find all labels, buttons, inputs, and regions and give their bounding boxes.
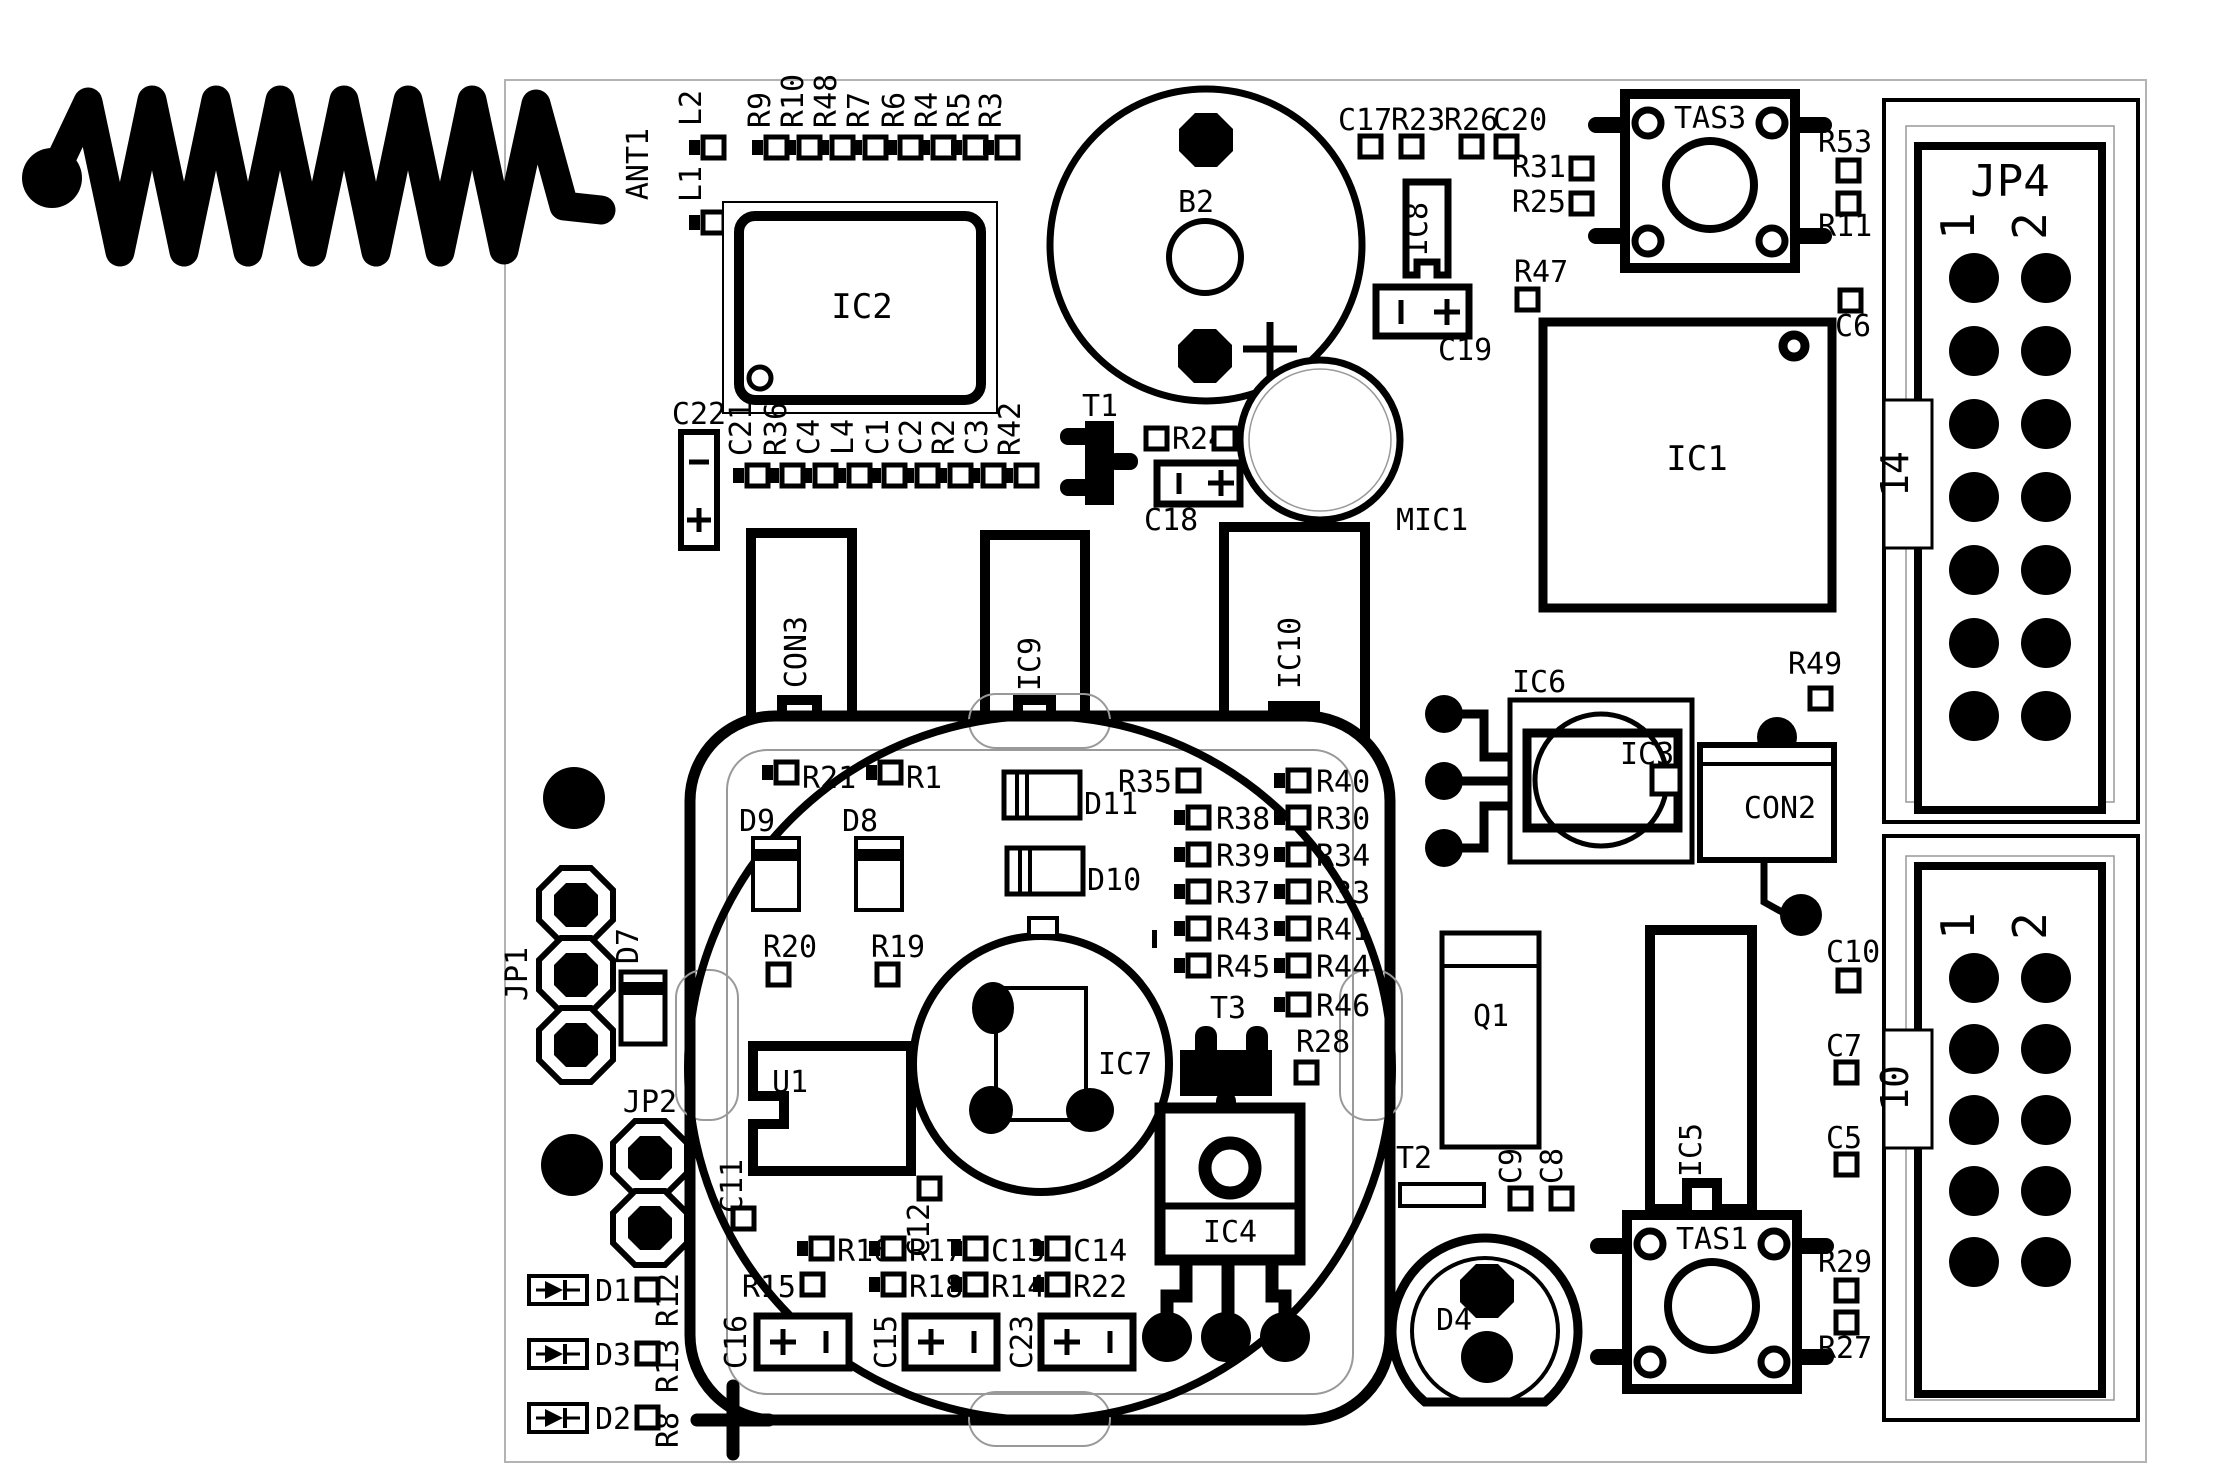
label-d2: D2	[595, 1402, 631, 1437]
pin	[1949, 545, 1999, 595]
jp2-pad	[613, 1121, 687, 1195]
pin	[2021, 618, 2071, 668]
label-r9: R9	[743, 92, 778, 128]
pin	[1949, 253, 1999, 303]
label-r13: R13	[651, 1339, 686, 1393]
label-r30: R30	[1316, 802, 1370, 837]
ic1-pin1-dot	[1783, 335, 1805, 357]
component-d8	[856, 838, 902, 910]
label-r7: R7	[842, 92, 877, 128]
label-r27: R27	[1818, 1331, 1872, 1366]
pin	[1949, 1095, 1999, 1145]
label-tas3: TAS3	[1674, 101, 1746, 136]
solder-pad	[733, 465, 768, 486]
label-c11: C11	[715, 1159, 750, 1213]
label-r12: R12	[651, 1273, 686, 1327]
label-d8: D8	[842, 804, 878, 839]
pin	[1142, 1312, 1192, 1362]
pin	[2021, 399, 2071, 449]
solder-pad	[1810, 688, 1831, 709]
component-d1	[529, 1276, 587, 1304]
label-c10: C10	[1826, 935, 1880, 970]
solder-pad	[1174, 918, 1209, 939]
solder-pad	[936, 465, 971, 486]
component-b2: B2	[1050, 89, 1362, 401]
label-q1: Q1	[1473, 999, 1509, 1034]
solder-pad	[1174, 807, 1209, 828]
tick-mark	[1152, 930, 1157, 948]
label-c19: C19	[1438, 333, 1492, 368]
solder-pad	[768, 964, 789, 985]
pin	[2021, 1237, 2071, 1287]
solder-pad	[1033, 1238, 1068, 1259]
pin	[2021, 545, 2071, 595]
ic7-tab	[1029, 918, 1057, 936]
solder-pad	[1274, 881, 1309, 902]
label-r49: R49	[1788, 647, 1842, 682]
label-ic9: IC9	[1013, 637, 1048, 691]
solder-pad	[1571, 193, 1592, 214]
solder-pad	[1174, 881, 1209, 902]
label-r19: R19	[871, 930, 925, 965]
solder-pad	[951, 1274, 986, 1295]
label-r5: R5	[942, 92, 977, 128]
pcb-silkscreen-drawing: ANT1 L2 L1 R9 R10 R48 R7 R6 R4 R5 R3 IC2…	[0, 0, 2232, 1470]
solder-pad	[1571, 158, 1592, 179]
label-r1: R1	[906, 761, 942, 796]
label-jp4-col1: 1	[1931, 212, 1985, 240]
label-r4: R4	[910, 92, 945, 128]
label-ic4: IC4	[1203, 1215, 1257, 1250]
jp2-pad	[613, 1191, 687, 1265]
pin	[1461, 1331, 1513, 1383]
solder-pad	[689, 212, 724, 233]
label-jp1: JP1	[500, 947, 535, 1001]
solder-pad	[1461, 136, 1482, 157]
pin	[1949, 953, 1999, 1003]
label-b2: B2	[1178, 185, 1214, 220]
solder-pad	[1836, 1312, 1857, 1333]
via	[543, 767, 605, 829]
solder-pad	[1838, 970, 1859, 991]
solder-pad	[802, 1274, 823, 1295]
pin	[1949, 1237, 1999, 1287]
label-r35: R35	[1118, 765, 1172, 800]
label-r40: R40	[1316, 765, 1370, 800]
solder-pad	[851, 137, 886, 158]
solder-pad	[903, 465, 938, 486]
label-jp4: JP4	[1970, 156, 2049, 207]
jpbot-body	[1918, 866, 2102, 1394]
label-l2: L2	[674, 90, 709, 126]
pin	[1949, 399, 1999, 449]
solder-pad	[1551, 1188, 1572, 1209]
label-r48: R48	[809, 74, 844, 128]
label-r28: R28	[1296, 1025, 1350, 1060]
pin	[1949, 618, 1999, 668]
pin	[2021, 691, 2071, 741]
label-r10: R10	[776, 74, 811, 128]
label-con3: CON3	[779, 616, 814, 688]
label-c2: C2	[894, 419, 929, 455]
label-d1: D1	[595, 1274, 631, 1309]
ic2-pin1-dot	[749, 367, 771, 389]
component-ic4: IC4	[1142, 1108, 1310, 1362]
jp1-pad	[539, 1008, 613, 1082]
solder-pad	[801, 465, 836, 486]
solder-pad	[1836, 1154, 1857, 1175]
solder-pad	[1174, 955, 1209, 976]
t2-body	[1400, 1184, 1484, 1206]
solder-pad	[919, 137, 954, 158]
t1-body	[1085, 421, 1114, 505]
solder-pad	[752, 137, 787, 158]
label-jp2: JP2	[623, 1085, 677, 1120]
label-c5: C5	[1826, 1121, 1862, 1156]
label-r36: R36	[759, 402, 794, 456]
pin	[1949, 472, 1999, 522]
label-d9: D9	[739, 804, 775, 839]
jp1-pad	[539, 868, 613, 942]
label-r29: R29	[1818, 1245, 1872, 1280]
label-c8: C8	[1535, 1148, 1570, 1184]
label-t2: T2	[1396, 1141, 1432, 1176]
solder-pad	[1274, 918, 1309, 939]
label-c6: C6	[1835, 309, 1871, 344]
label-r46: R46	[1316, 989, 1370, 1024]
pin	[1425, 762, 1463, 800]
solder-pad	[1274, 955, 1309, 976]
solder-pad	[1510, 1188, 1531, 1209]
connector-jp4: JP4 1 2 14	[1873, 100, 2138, 822]
label-t1: T1	[1082, 389, 1118, 424]
label-u1: U1	[772, 1065, 808, 1100]
label-ic10: IC10	[1273, 617, 1308, 689]
pin	[2021, 326, 2071, 376]
solder-pad	[1174, 844, 1209, 865]
solder-pad	[1296, 1062, 1317, 1083]
pin	[2021, 953, 2071, 1003]
component-d10	[1007, 848, 1083, 894]
component-d2	[529, 1404, 587, 1432]
label-l4: L4	[826, 419, 861, 455]
solder-pad	[983, 137, 1018, 158]
solder-pad	[1002, 465, 1037, 486]
component-c22: C22	[672, 397, 726, 548]
label-c1: C1	[861, 419, 896, 455]
solder-pad	[1836, 1062, 1857, 1083]
t3-body	[1180, 1050, 1272, 1096]
solder-pad	[1146, 428, 1167, 449]
label-c18: C18	[1144, 503, 1198, 538]
label-c23: C23	[1005, 1315, 1040, 1369]
pin	[1260, 1312, 1310, 1362]
solder-pad	[870, 465, 905, 486]
pin	[2021, 253, 2071, 303]
label-r6: R6	[877, 92, 912, 128]
label-r34: R34	[1316, 839, 1370, 874]
label-r44: R44	[1316, 950, 1370, 985]
solder-pad	[1274, 770, 1309, 791]
solder-pad	[1178, 770, 1199, 791]
mic1-body	[1240, 360, 1400, 520]
via	[541, 1134, 603, 1196]
solder-pad	[877, 964, 898, 985]
b2-pad	[1178, 329, 1232, 383]
label-tas1: TAS1	[1676, 1222, 1748, 1257]
jp1-pad	[539, 938, 613, 1012]
pin	[1066, 1088, 1114, 1132]
component-d4: D4	[1392, 1238, 1578, 1404]
label-jp4-col2: 2	[2003, 212, 2057, 240]
label-r2: R2	[927, 419, 962, 455]
component-c23: C23	[1005, 1315, 1133, 1369]
label-c22: C22	[672, 397, 726, 432]
label-r15: R15	[742, 1270, 796, 1305]
label-c17: C17	[1338, 103, 1392, 138]
connector-bottom: 1 2 10	[1873, 836, 2138, 1420]
label-r8: R8	[651, 1412, 686, 1448]
solder-pad	[869, 1238, 904, 1259]
solder-pad	[768, 465, 803, 486]
label-c14: C14	[1073, 1234, 1127, 1269]
solder-pad	[689, 137, 724, 158]
label-r23: R23	[1391, 103, 1445, 138]
solder-pad	[919, 1178, 940, 1199]
solder-pad	[869, 1274, 904, 1295]
component-c15: C15	[869, 1315, 997, 1369]
label-d10: D10	[1087, 863, 1141, 898]
label-r53: R53	[1818, 125, 1872, 160]
label-r22: R22	[1073, 1270, 1127, 1305]
label-c3: C3	[960, 419, 995, 455]
label-r25: R25	[1512, 185, 1566, 220]
label-d3: D3	[595, 1338, 631, 1373]
solder-pad	[1840, 290, 1861, 311]
solder-pad	[835, 465, 870, 486]
label-c16: C16	[719, 1315, 754, 1369]
solder-pad	[1033, 1274, 1068, 1295]
solder-pad	[785, 137, 820, 158]
component-ic1: IC1	[1543, 322, 1832, 608]
solder-pad	[1360, 136, 1381, 157]
component-ic2: IC2	[723, 202, 997, 413]
label-c4: C4	[792, 419, 827, 455]
component-d7	[621, 972, 665, 1044]
component-q1: Q1	[1442, 933, 1539, 1147]
label-ic7: IC7	[1098, 1047, 1152, 1082]
pin	[1949, 1024, 1999, 1074]
component-c16: C16	[719, 1315, 849, 1369]
component-d3	[529, 1340, 587, 1368]
pin	[972, 982, 1014, 1034]
label-c7: C7	[1826, 1029, 1862, 1064]
label-ic5: IC5	[1674, 1123, 1709, 1177]
solder-pad	[818, 137, 853, 158]
coil-zigzag	[52, 100, 601, 252]
label-r20: R20	[763, 930, 817, 965]
label-c20: C20	[1493, 103, 1547, 138]
label-r37: R37	[1216, 876, 1270, 911]
label-r45: R45	[1216, 950, 1270, 985]
pin	[1949, 1166, 1999, 1216]
pin	[1949, 326, 1999, 376]
solder-pad	[886, 137, 921, 158]
solder-pad	[1214, 428, 1235, 449]
label-c21: C21	[724, 402, 759, 456]
label-r41: R41	[1316, 913, 1370, 948]
jp4-body	[1918, 146, 2102, 810]
b2-pad	[1179, 113, 1233, 167]
pin	[2021, 472, 2071, 522]
label-jpbot-pincount: 10	[1873, 1065, 1917, 1111]
solder-pad	[1517, 289, 1538, 310]
label-ic1: IC1	[1666, 439, 1727, 479]
solder-pad	[1838, 160, 1859, 181]
solder-pad	[1274, 807, 1309, 828]
component-d11	[1004, 772, 1080, 818]
label-r11: R11	[1818, 209, 1872, 244]
ic4-hole	[1205, 1143, 1255, 1193]
pin	[1780, 894, 1822, 936]
solder-pad	[866, 762, 901, 783]
label-d7: D7	[611, 928, 646, 964]
solder-pad	[762, 762, 797, 783]
solder-pad	[1274, 994, 1309, 1015]
label-r26: R26	[1444, 103, 1498, 138]
solder-pad	[951, 137, 986, 158]
solder-pad	[969, 465, 1004, 486]
label-ic8: IC8	[1400, 202, 1435, 256]
component-d9	[753, 838, 799, 910]
label-jp4-pincount: 14	[1873, 451, 1917, 497]
pcb-layout-canvas: ANT1 L2 L1 R9 R10 R48 R7 R6 R4 R5 R3 IC2…	[0, 0, 2232, 1470]
label-c9: C9	[1494, 1148, 1529, 1184]
label-r43: R43	[1216, 913, 1270, 948]
solder-pad	[797, 1238, 832, 1259]
label-c15: C15	[869, 1315, 904, 1369]
label-ic6: IC6	[1512, 665, 1566, 700]
pin	[2021, 1024, 2071, 1074]
label-t3: T3	[1210, 991, 1246, 1026]
label-r33: R33	[1316, 876, 1370, 911]
label-ic3: IC3	[1620, 737, 1674, 772]
label-d4: D4	[1436, 1303, 1472, 1338]
pin	[2021, 1166, 2071, 1216]
solder-pad	[951, 1238, 986, 1259]
pin	[1949, 691, 1999, 741]
label-r42: R42	[993, 402, 1028, 456]
solder-pad	[1836, 1280, 1857, 1301]
label-con2: CON2	[1744, 791, 1816, 826]
label-r3: R3	[974, 92, 1009, 128]
solder-pad	[1401, 136, 1422, 157]
label-jpbot-col1: 1	[1931, 912, 1985, 940]
label-r21: R21	[802, 761, 856, 796]
label-l1: L1	[674, 166, 709, 202]
label-jpbot-col2: 2	[2003, 912, 2057, 940]
solder-pad	[1274, 844, 1309, 865]
label-r39: R39	[1216, 839, 1270, 874]
pin	[1201, 1312, 1251, 1362]
pin	[2021, 1095, 2071, 1145]
pin	[1425, 695, 1463, 733]
solder-pad	[733, 1208, 754, 1229]
label-r31: R31	[1512, 150, 1566, 185]
label-r47: R47	[1514, 255, 1568, 290]
label-mic1: MIC1	[1396, 503, 1468, 538]
label-ant1: ANT1	[621, 128, 656, 200]
label-ic2: IC2	[831, 287, 892, 327]
label-r38: R38	[1216, 802, 1270, 837]
b2-hole	[1169, 221, 1241, 293]
pin	[1425, 829, 1463, 867]
pin	[969, 1086, 1013, 1134]
